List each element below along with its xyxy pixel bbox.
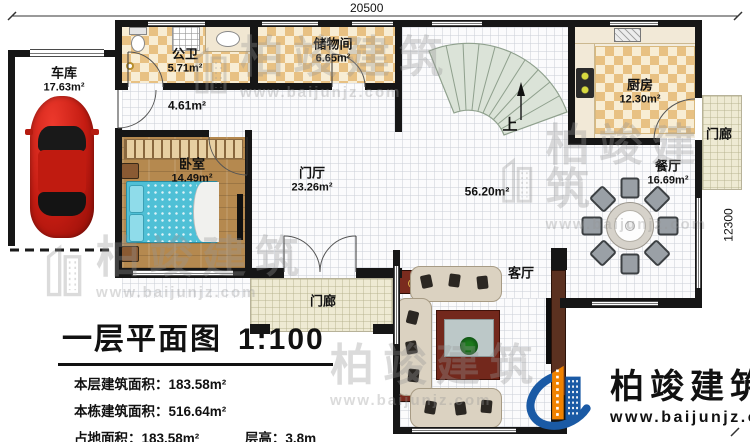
company-name: 柏竣建筑 [610, 369, 750, 406]
window [262, 21, 318, 26]
room-label-hallway: 4.61m² [168, 99, 206, 112]
nightstand [121, 163, 139, 179]
wall-segment [245, 130, 252, 278]
sofa-bottom [410, 388, 502, 428]
title-block: 一层平面图1:100 本层建筑面积：183.58m² 本栋建筑面积：516.64… [58, 314, 333, 442]
wall-segment [568, 138, 660, 145]
wall-segment [258, 83, 332, 90]
car [30, 96, 94, 238]
car-rear-window [38, 192, 86, 216]
wall-segment [104, 50, 115, 57]
kitchen-sink [614, 28, 641, 42]
bed-duvet [145, 182, 197, 242]
wall-segment [115, 128, 122, 278]
car-mirror-left [25, 129, 33, 135]
room-label-porch-front: 门廊 [310, 295, 336, 310]
wall-segment [163, 83, 252, 90]
porch-pier [373, 324, 393, 334]
car-roof [38, 150, 86, 194]
car-windshield [38, 126, 86, 152]
stat-footprint-and-height: 占地面积：183.58m² 层高：3.8m [74, 427, 333, 442]
window [148, 21, 205, 26]
dimension-top: 20500 [345, 1, 388, 15]
window [432, 21, 482, 26]
wall-segment [250, 27, 258, 90]
wall-segment [252, 268, 284, 278]
floor-plan: 20500 12300 车库 17.63m² 公卫 5.71m² 储物间 6.6… [0, 0, 750, 442]
room-label-storage: 储物间 6.65m² [313, 38, 352, 65]
bed-duvet-fold [193, 182, 219, 242]
nightstand [121, 246, 139, 262]
garage-door [30, 49, 104, 57]
bed [126, 181, 218, 243]
stove [576, 68, 594, 98]
room-label-open-area: 56.20m² [465, 185, 510, 198]
dining-table-center [625, 221, 635, 231]
toilet-bowl [131, 35, 145, 52]
floor-drain [126, 62, 134, 70]
dining-chair [621, 254, 640, 275]
wall-segment [551, 248, 567, 270]
window [133, 270, 233, 276]
plant [460, 337, 478, 355]
wall-segment [122, 83, 128, 90]
wall-segment [395, 20, 402, 132]
dining-chair [658, 217, 679, 236]
window [394, 266, 399, 344]
window [610, 21, 658, 26]
dining-chair [621, 178, 640, 199]
room-label-garage: 车库 17.63m² [44, 67, 85, 94]
window [412, 428, 516, 433]
wall-segment [115, 20, 122, 90]
window [352, 21, 393, 26]
room-label-kitchen: 厨房 12.30m² [620, 79, 661, 106]
porch-right-floor [702, 95, 742, 190]
bath-sink [216, 31, 240, 47]
dining-chair [582, 217, 603, 236]
sofa-left [396, 298, 432, 396]
company-website: www.baijunjz.com [610, 409, 750, 427]
toilet [129, 27, 147, 35]
room-label-dining: 餐厅 16.69m² [648, 160, 689, 187]
bed-pillow [129, 185, 144, 213]
wall-segment [695, 20, 702, 98]
coffee-table [436, 310, 500, 380]
company-logo-icon [520, 358, 602, 438]
company-logo: 柏竣建筑 www.baijunjz.com [520, 358, 750, 438]
wall-segment [568, 27, 575, 145]
room-label-bedroom: 卧室 14.49m² [172, 158, 213, 185]
stairs-up-label: 上 [502, 118, 517, 135]
living-tv [546, 298, 551, 364]
window [592, 301, 658, 306]
wall-segment [8, 50, 15, 246]
bedroom-tv [237, 194, 243, 240]
stat-floor-area: 本层建筑面积：183.58m² [74, 373, 333, 393]
room-label-bathroom: 公卫 5.71m² [168, 48, 203, 75]
sofa-top [410, 266, 502, 302]
window [696, 198, 701, 288]
room-label-porch-right: 门廊 [706, 128, 732, 143]
room-label-foyer: 门厅 23.26m² [292, 167, 333, 194]
car-mirror-right [91, 129, 99, 135]
stat-building-area: 本栋建筑面积：516.64m² [74, 400, 333, 420]
bed-pillow [129, 214, 144, 242]
room-label-living: 客厅 [508, 267, 534, 282]
dimension-right: 12300 [722, 208, 736, 241]
wall-segment [122, 130, 209, 137]
plan-title: 一层平面图1:100 [58, 314, 333, 366]
